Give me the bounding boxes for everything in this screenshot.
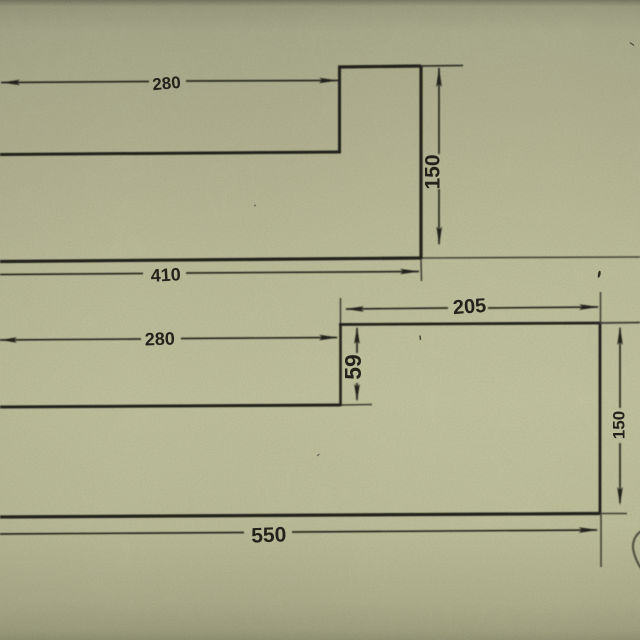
svg-text:410: 410 (150, 264, 181, 286)
svg-text:205: 205 (452, 295, 487, 319)
svg-text:150: 150 (609, 411, 628, 439)
svg-text:150: 150 (422, 154, 445, 189)
svg-text:59: 59 (340, 354, 366, 380)
svg-text:280: 280 (144, 328, 175, 349)
svg-text:280: 280 (152, 73, 182, 94)
svg-text:550: 550 (251, 523, 287, 547)
